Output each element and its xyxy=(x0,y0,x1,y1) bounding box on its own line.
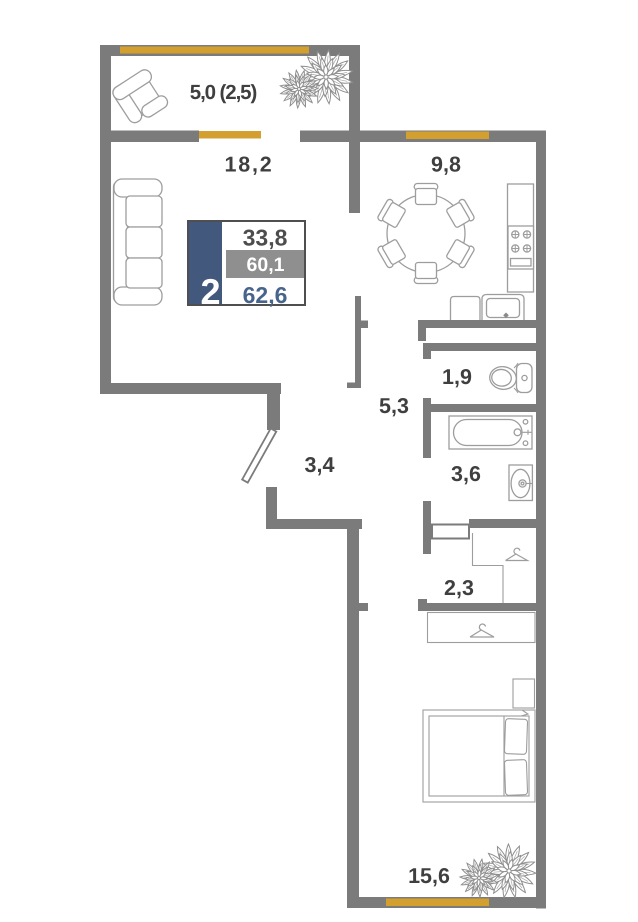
svg-text:2: 2 xyxy=(200,271,220,312)
svg-text:15,6: 15,6 xyxy=(408,864,450,888)
svg-text:2,3: 2,3 xyxy=(444,576,474,600)
svg-text:1,9: 1,9 xyxy=(442,365,472,389)
svg-text:3,6: 3,6 xyxy=(451,462,481,486)
svg-text:60,1: 60,1 xyxy=(247,254,285,276)
svg-text:5,3: 5,3 xyxy=(379,394,409,418)
svg-text:18,2: 18,2 xyxy=(224,153,273,177)
svg-text:62,6: 62,6 xyxy=(243,282,288,308)
svg-text:3,4: 3,4 xyxy=(305,453,335,477)
svg-text:33,8: 33,8 xyxy=(243,225,288,251)
svg-text:5,0 (2,5): 5,0 (2,5) xyxy=(190,81,257,104)
svg-text:9,8: 9,8 xyxy=(431,153,461,177)
